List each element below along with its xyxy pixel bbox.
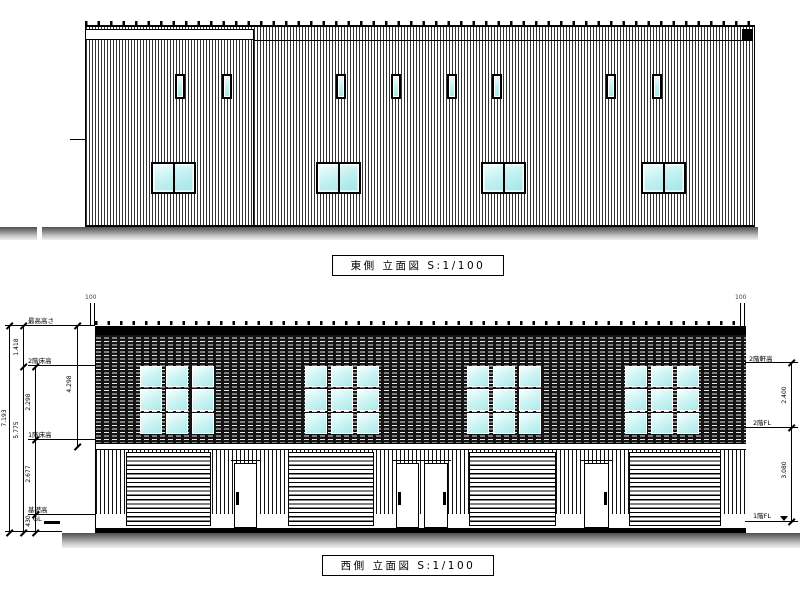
window-pane <box>468 367 488 386</box>
window-pane <box>652 390 672 409</box>
window-grid-group <box>306 367 378 433</box>
slit-window <box>606 74 616 99</box>
window-pane <box>494 414 514 433</box>
level-label-floor1-right: 1階FL <box>753 513 771 520</box>
slit-window <box>447 74 457 99</box>
window-mullion <box>338 164 340 192</box>
window-pane <box>332 367 352 386</box>
window-pane <box>678 414 698 433</box>
entrance-door <box>396 463 419 528</box>
slider-window <box>481 162 526 194</box>
dimension-line-total <box>9 326 10 533</box>
window-pane <box>306 367 326 386</box>
slider-window <box>316 162 361 194</box>
vent-pipe-right-label: 100 <box>735 295 746 301</box>
level-label-max-height: 最高高さ <box>28 318 54 325</box>
west-ground-strip <box>62 533 800 548</box>
entrance-door <box>584 463 609 528</box>
dim-inner: 4.298 <box>67 371 73 397</box>
west-parapet-band <box>96 326 746 335</box>
shutter-door <box>126 452 211 526</box>
drawing-page: 東側 立面図 S:1/100 100 100 最高高さ 2階床高 1階床高 基礎… <box>0 0 800 600</box>
window-pane <box>167 414 187 433</box>
window-pane <box>520 390 540 409</box>
door-lintel <box>421 460 451 461</box>
window-pane <box>468 390 488 409</box>
leader-floor1 <box>28 439 95 440</box>
east-elevation-building <box>85 25 755 227</box>
leader-max-height <box>5 325 95 326</box>
door-lintel <box>581 460 612 461</box>
window-pane <box>626 390 646 409</box>
window-pane <box>167 390 187 409</box>
slit-window <box>175 74 185 99</box>
dimension-line-right <box>791 363 792 522</box>
dim-right-lower: 3.080 <box>782 457 788 483</box>
window-grid-group <box>141 367 213 433</box>
window-mullion <box>503 164 505 192</box>
slit-window <box>391 74 401 99</box>
door-handle <box>398 492 401 505</box>
window-pane <box>358 414 378 433</box>
slit-window <box>492 74 502 99</box>
east-corner-cap <box>742 29 753 41</box>
window-pane <box>494 390 514 409</box>
west-title: 西側 立面図 S:1/100 <box>341 558 476 573</box>
slider-window <box>641 162 686 194</box>
door-lintel <box>231 460 260 461</box>
east-title: 東側 立面図 S:1/100 <box>351 258 486 273</box>
west-title-box: 西側 立面図 S:1/100 <box>322 555 494 576</box>
window-pane <box>306 390 326 409</box>
window-pane <box>652 367 672 386</box>
window-pane <box>193 414 213 433</box>
gl-mark <box>44 521 60 524</box>
level-label-floor1: 1階床高 <box>28 432 52 439</box>
dim-right-upper: 2.400 <box>782 382 788 408</box>
dimension-line-left2 <box>23 326 24 533</box>
vent-pipe-left-label: 100 <box>85 295 96 301</box>
slider-window <box>151 162 196 194</box>
dimension-line-left3 <box>35 367 36 533</box>
west-floor-band <box>96 443 746 450</box>
window-pane <box>494 367 514 386</box>
dimension-tick <box>74 443 81 450</box>
east-title-box: 東側 立面図 S:1/100 <box>332 255 504 276</box>
east-level-tick <box>70 139 85 140</box>
window-pane <box>652 414 672 433</box>
west-elevation-building <box>95 326 745 533</box>
shutter-door <box>288 452 374 526</box>
window-pane <box>678 390 698 409</box>
slit-window <box>336 74 346 99</box>
door-handle <box>604 492 607 505</box>
vent-pipe-left <box>90 303 91 326</box>
door-lintel <box>393 460 422 461</box>
window-pane <box>520 414 540 433</box>
window-pane <box>332 414 352 433</box>
level-label-floor2: 2階床高 <box>28 358 52 365</box>
east-coping-band <box>86 29 253 40</box>
level-label-floor2-right: 2階FL <box>753 420 771 427</box>
dim-below-floor2: 5.775 <box>14 417 20 443</box>
entrance-door <box>424 463 448 528</box>
west-parapet-tick-row <box>95 321 745 325</box>
window-pane <box>141 390 161 409</box>
dim-floor1-foundation: 2.677 <box>26 461 32 487</box>
entrance-door <box>234 463 257 528</box>
door-handle <box>236 492 239 505</box>
window-pane <box>626 367 646 386</box>
window-pane <box>141 414 161 433</box>
dim-total: 7.193 <box>2 405 8 431</box>
dim-floor2-floor1: 2.298 <box>26 389 32 415</box>
east-wall-seam <box>253 29 254 227</box>
east-ground-gap <box>37 227 42 240</box>
leader-foundation <box>28 514 95 515</box>
window-pane <box>193 390 213 409</box>
window-pane <box>306 414 326 433</box>
window-pane <box>468 414 488 433</box>
window-pane <box>332 390 352 409</box>
fl-marker-triangle <box>780 516 788 521</box>
dim-parapet: 1.418 <box>14 334 20 360</box>
door-handle <box>443 492 446 505</box>
window-grid-group <box>468 367 540 433</box>
east-ground-strip <box>0 227 758 240</box>
window-pane <box>626 414 646 433</box>
slit-window <box>652 74 662 99</box>
window-pane <box>358 390 378 409</box>
east-coping-line <box>253 40 753 41</box>
window-pane <box>678 367 698 386</box>
shutter-door <box>629 452 721 526</box>
window-pane <box>358 367 378 386</box>
window-grid-group <box>626 367 698 433</box>
window-pane <box>167 367 187 386</box>
window-pane <box>193 367 213 386</box>
window-mullion <box>663 164 665 192</box>
window-pane <box>520 367 540 386</box>
window-pane <box>141 367 161 386</box>
slit-window <box>222 74 232 99</box>
shutter-door <box>469 452 556 526</box>
window-mullion <box>173 164 175 192</box>
dimension-line-inner <box>77 326 78 447</box>
